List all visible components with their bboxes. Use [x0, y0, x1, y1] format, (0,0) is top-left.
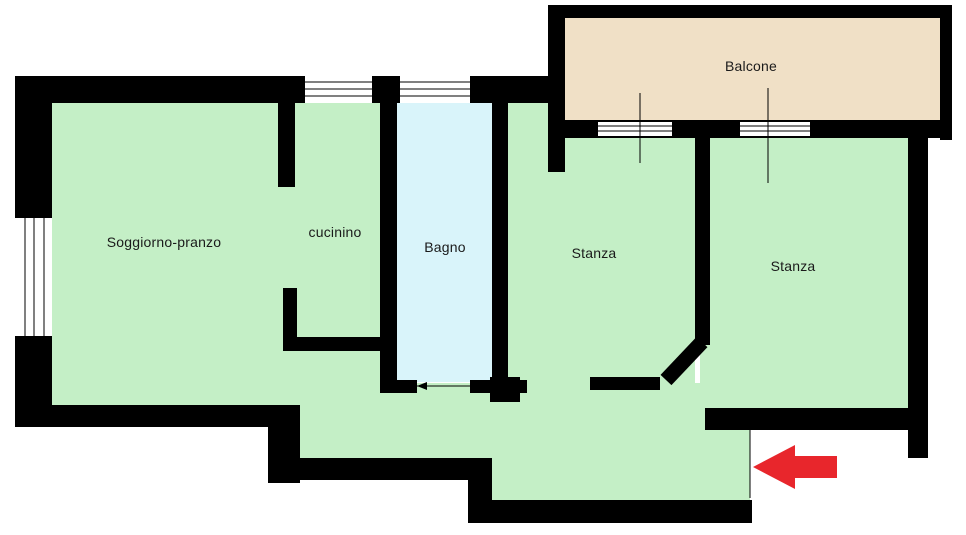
- floor-plan-drawing: [0, 0, 966, 535]
- window-glass: [740, 122, 810, 136]
- room-label-soggiorno-pranzo: Soggiorno-pranzo: [107, 234, 222, 250]
- wall-cucinino-lower-horizontal: [283, 337, 385, 351]
- wall-balcone-top: [548, 5, 952, 18]
- window-top-cucinino: [305, 76, 372, 103]
- window-left-soggiorno: [17, 218, 52, 336]
- wall-cucinino-top: [278, 103, 295, 187]
- room-label-stanza-1: Stanza: [572, 245, 617, 261]
- wall-soggiorno-bottom: [15, 405, 300, 427]
- wall-stanza-1-corner: [490, 377, 520, 402]
- room-label-bagno: Bagno: [424, 239, 465, 255]
- exterior-bottom-left: [0, 427, 268, 535]
- wall-between-stanze: [695, 137, 710, 345]
- wall-left-upper: [15, 76, 52, 218]
- floor-plan: Soggiorno-pranzo cucinino Bagno Stanza S…: [0, 0, 966, 535]
- wall-stanza-2-bottom: [705, 408, 908, 430]
- wall-right: [908, 125, 928, 458]
- room-label-balcone: Balcone: [725, 58, 777, 74]
- window-top-bagno: [400, 76, 470, 103]
- exterior-entrance-nook: [750, 430, 966, 535]
- corridor-right-floor: [490, 383, 908, 408]
- wall-bottom-middle: [268, 458, 470, 480]
- wall-bottom-entrance: [468, 500, 752, 523]
- wall-balcone-right: [940, 5, 952, 140]
- exterior-bottom-step: [268, 480, 468, 535]
- room-label-cucinino: cucinino: [309, 224, 362, 240]
- room-label-stanza-2: Stanza: [771, 258, 816, 274]
- wall-bagno-right: [492, 103, 508, 393]
- wall-stanza-1-bottom: [590, 377, 660, 390]
- wall-bagno-door-left: [383, 380, 417, 393]
- soggiorno-cucinino-floor: [52, 103, 380, 458]
- window-glass: [598, 122, 672, 136]
- wall-balcone-left: [548, 5, 565, 172]
- wall-bagno-left: [380, 103, 397, 393]
- wall-top: [17, 76, 563, 103]
